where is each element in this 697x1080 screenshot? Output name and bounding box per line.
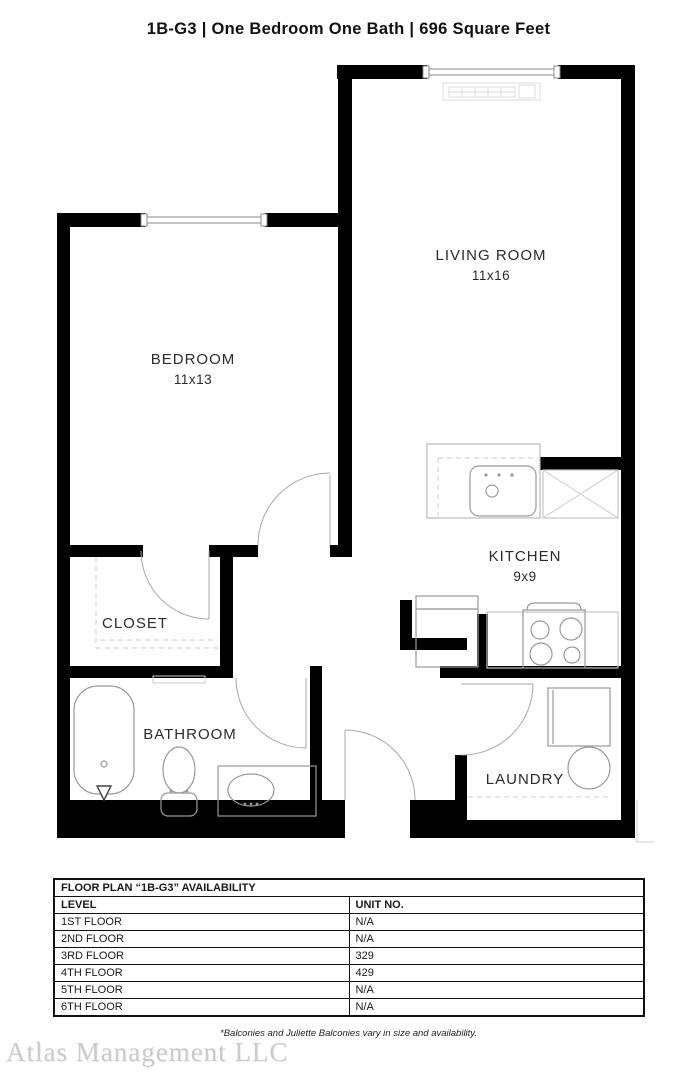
dryer — [568, 747, 610, 789]
closet-shelving — [96, 557, 218, 648]
kitchen-dims: 9x9 — [513, 569, 536, 584]
closet-door — [141, 551, 209, 619]
closet-label: CLOSET — [102, 615, 168, 632]
bedroom-window — [141, 214, 267, 226]
refrigerator — [416, 596, 478, 667]
bedroom-label: BEDROOM — [151, 351, 236, 368]
company-watermark: Atlas Management LLC — [6, 1037, 288, 1068]
unit-cell: N/A — [349, 931, 644, 948]
living-room-window — [423, 66, 560, 78]
kitchen-label: KITCHEN — [489, 548, 562, 565]
unit-cell: N/A — [349, 999, 644, 1017]
table-row: 2ND FLOOR N/A — [54, 931, 644, 948]
washer — [548, 688, 610, 746]
availability-table-title: FLOOR PLAN “1B-G3” AVAILABILITY — [54, 879, 644, 897]
table-row: 6TH FLOOR N/A — [54, 999, 644, 1017]
level-cell: 2ND FLOOR — [54, 931, 349, 948]
living-room-dims: 11x16 — [472, 268, 510, 283]
unit-cell: 329 — [349, 948, 644, 965]
bedroom-dims: 11x13 — [174, 372, 212, 387]
table-row: 4TH FLOOR 429 — [54, 965, 644, 982]
baseboard-heater — [443, 83, 540, 100]
range — [487, 603, 618, 668]
laundry-door — [461, 684, 533, 755]
table-row: 5TH FLOOR N/A — [54, 982, 644, 999]
bathtub — [74, 686, 134, 800]
exterior-step — [637, 800, 654, 842]
level-cell: 3RD FLOOR — [54, 948, 349, 965]
unit-cell: N/A — [349, 982, 644, 999]
bedroom-door — [258, 473, 330, 545]
entry-door — [345, 730, 415, 800]
level-cell: 1ST FLOOR — [54, 914, 349, 931]
bathroom-label: BATHROOM — [143, 726, 237, 743]
kitchen-sink — [427, 444, 540, 518]
table-row: 3RD FLOOR 329 — [54, 948, 644, 965]
column-header-unit-no: UNIT NO. — [349, 897, 644, 914]
unit-cell: 429 — [349, 965, 644, 982]
level-cell: 6TH FLOOR — [54, 999, 349, 1017]
dishwasher-x-cabinet — [543, 470, 618, 518]
unit-cell: N/A — [349, 914, 644, 931]
level-cell: 5TH FLOOR — [54, 982, 349, 999]
living-room-label: LIVING ROOM — [435, 247, 546, 264]
level-cell: 4TH FLOOR — [54, 965, 349, 982]
bathroom-door — [236, 678, 306, 748]
column-header-level: LEVEL — [54, 897, 349, 914]
laundry-label: LAUNDRY — [486, 771, 564, 788]
table-row: 1ST FLOOR N/A — [54, 914, 644, 931]
availability-table: FLOOR PLAN “1B-G3” AVAILABILITY LEVEL UN… — [53, 878, 645, 1017]
